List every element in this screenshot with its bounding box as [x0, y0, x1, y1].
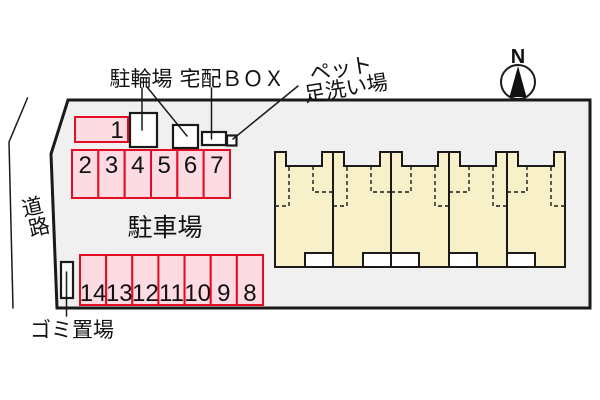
delivery-box-label: 宅配ＢＯＸ [180, 68, 285, 91]
road-label: 道路 [20, 194, 52, 242]
car-parking-label: 駐車場 [127, 214, 202, 242]
building-entrance [363, 253, 391, 267]
parking-stall-3-number: 3 [105, 152, 118, 179]
parking-stall-8-number: 8 [243, 280, 256, 307]
site-plan-page: 1 234567 141312111098 駐輪場 宅配ＢＯＸ ペット足洗い場 … [0, 0, 600, 400]
parking-stall-4-number: 4 [131, 152, 144, 179]
building [275, 152, 565, 267]
parking-stall-11-number: 11 [159, 280, 184, 307]
parking-stall-10-number: 10 [184, 280, 211, 307]
parking-stall-12-number: 12 [132, 280, 159, 307]
building-entrance [391, 253, 419, 267]
delivery-box [202, 132, 226, 145]
parking-stall-6-number: 6 [184, 152, 197, 179]
building-entrance [305, 253, 333, 267]
building-entrance [507, 253, 535, 267]
parking-stall-2-number: 2 [78, 152, 91, 179]
site-plan-svg: 1 234567 141312111098 駐輪場 宅配ＢＯＸ ペット足洗い場 … [0, 0, 600, 400]
parking-row-bottom: 141312111098 [80, 255, 263, 307]
north-compass: N [501, 46, 535, 99]
road-label-char2: 路 [26, 214, 52, 241]
bicycle-parking-box-1 [130, 113, 157, 147]
parking-stall-7-number: 7 [210, 152, 223, 179]
parking-stall-14-number: 14 [80, 280, 107, 307]
building-entrance [449, 253, 477, 267]
parking-row-top: 234567 [72, 150, 230, 198]
parking-stall-9-number: 9 [217, 280, 230, 307]
building-outline [275, 152, 565, 267]
bicycle-parking-box-2 [173, 125, 198, 148]
parking-stall-13-number: 13 [106, 280, 133, 307]
bicycle-parking-label: 駐輪場 [110, 68, 173, 91]
parking-stall-1-number: 1 [110, 117, 123, 144]
parking-stall-5-number: 5 [157, 152, 170, 179]
garbage-area-label: ゴミ置場 [30, 319, 114, 342]
